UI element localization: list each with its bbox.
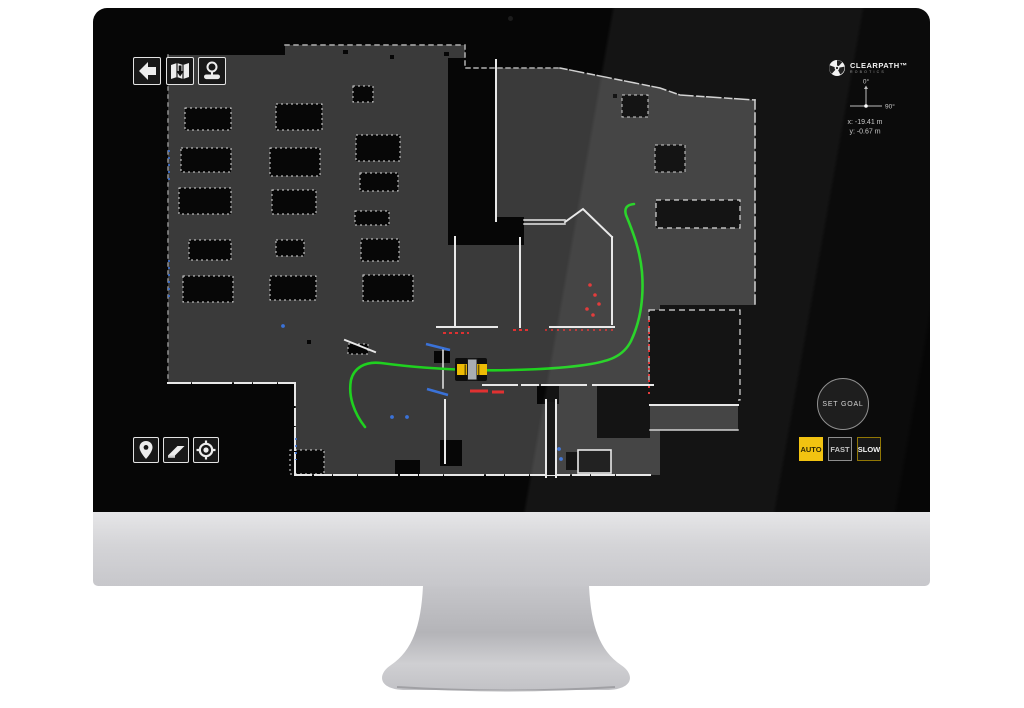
erase-button[interactable] (163, 437, 189, 463)
robot-ui-screen: CLEARPATH™ ROBOTICS 0° 90° x: -19.41 m y… (93, 8, 930, 512)
speed-mode-group: AUTO FAST SLOW (799, 437, 881, 461)
position-x: x: -19.41 m (847, 119, 882, 126)
compass-up-label: 0° (863, 78, 870, 86)
location-pin-icon (135, 439, 157, 461)
position-y: y: -0.67 m (849, 129, 880, 136)
back-button[interactable] (133, 57, 161, 85)
mode-fast-button[interactable]: FAST (828, 437, 852, 461)
webcam-dot (508, 16, 513, 21)
mode-auto-button[interactable]: AUTO (799, 437, 823, 461)
compass-right-label: 90° (885, 103, 895, 111)
back-arrow-icon (136, 60, 158, 82)
mode-slow-button[interactable]: SLOW (857, 437, 881, 461)
brand-logo: CLEARPATH™ ROBOTICS (828, 59, 908, 77)
target-locate-icon (195, 439, 217, 461)
desktop-monitor-scene: CLEARPATH™ ROBOTICS 0° 90° x: -19.41 m y… (0, 0, 1024, 708)
compass-north-arrow (864, 86, 868, 90)
monitor-chin (93, 512, 930, 586)
set-goal-button[interactable]: SET GOAL (817, 378, 869, 430)
imac-monitor: CLEARPATH™ ROBOTICS 0° 90° x: -19.41 m y… (93, 8, 930, 586)
brand-sub: ROBOTICS (850, 71, 908, 75)
robot-marker[interactable] (455, 358, 487, 381)
map-download-icon (169, 60, 191, 82)
map-save-button[interactable] (166, 57, 194, 85)
brand-name: CLEARPATH™ (850, 62, 908, 70)
waypoint-button[interactable] (133, 437, 159, 463)
compass-center-dot (864, 104, 868, 108)
compass-widget: 0° 90° x: -19.41 m y: -0.67 m (838, 76, 900, 138)
map-wall-gap (547, 402, 555, 475)
clearpath-gear-logo (828, 59, 846, 77)
map-scan-icon (201, 60, 223, 82)
eraser-icon (165, 439, 187, 461)
map-scan-button[interactable] (198, 57, 226, 85)
localize-button[interactable] (193, 437, 219, 463)
